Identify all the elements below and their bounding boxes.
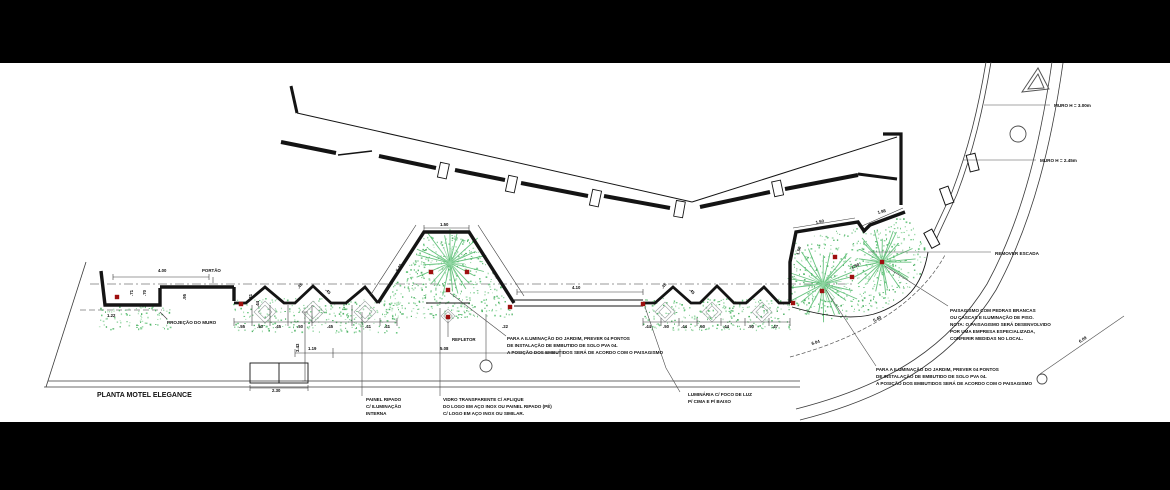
note-iluminacao-jardim-direita-line-1: PARA A ILUMINAÇÃO DO JARDIM, PREVER 04 P…: [876, 366, 999, 372]
dimension-text: .71: [129, 289, 134, 296]
dimension-text: .45: [327, 324, 334, 329]
refletor-marker: [446, 315, 450, 319]
dimension-text: .95: [182, 293, 187, 300]
dimension-text: .44: [723, 324, 730, 329]
dimension-text: .41: [248, 293, 253, 300]
note-painel-ripado-line-3: INTERNA: [366, 411, 387, 416]
dimension-text: 4.10: [572, 285, 581, 290]
dimension-text: 5.08: [440, 346, 449, 351]
note-iluminacao-jardim-centro-line-1: PARA A ILUMINAÇÃO DO JARDIM, PREVER 04 P…: [507, 335, 630, 341]
note-painel-ripado-line-2: C/ ILUMINAÇÃO: [366, 403, 402, 409]
note-iluminacao-jardim-centro-line-3: A POSIÇÃO DOS EMBUTIDOS SERÁ DE ACORDO C…: [507, 349, 663, 355]
dimension-text: 1.50: [440, 222, 449, 227]
note-vidro-logo-line-2: DO LOGO EM AÇO INOX OU PAINEL RIPADO (PÉ…: [443, 402, 552, 409]
site-plan-drawing: PLANTA MOTEL ELEGANCEMURO H = 3.00mMURO …: [0, 0, 1170, 490]
refletor-marker: [641, 302, 645, 306]
refletor-marker: [833, 255, 837, 259]
note-iluminacao-jardim-direita-line-2: DE INSTALAÇÃO DE EMBUTIDO DE SOLO PVA 04…: [876, 373, 987, 379]
dimension-text: 4.00: [158, 268, 167, 273]
dimension-text: .50: [297, 324, 304, 329]
note-vidro-logo-line-1: VIDRO TRANSPARENTE C/ APLIQUE: [443, 397, 524, 402]
note-paisagismo-line-2: OU CASCAS E ILUMINAÇÃO DE PISO.: [950, 314, 1034, 320]
dimension-text: .47: [772, 324, 779, 329]
dimension-text: .41: [384, 324, 391, 329]
dimension-text: .22: [502, 324, 509, 329]
label-muro-h245: MURO H = 2.45m: [1040, 158, 1077, 163]
refletor-marker: [820, 289, 824, 293]
label-muro-h300: MURO H = 3.00m: [1054, 103, 1091, 108]
dimension-text: 1.22: [107, 313, 116, 318]
label-portao: PORTÃO: [202, 268, 221, 273]
refletor-marker: [239, 302, 243, 306]
note-iluminacao-jardim-centro-line-2: DE INSTALAÇÃO DE EMBUTIDO DE SOLO PVA 04…: [507, 342, 618, 348]
dimension-text: .41: [365, 324, 372, 329]
note-luminaria-line-2: P/ CIMA E P/ BAIXO: [688, 399, 731, 404]
refletor-marker: [446, 288, 450, 292]
dimension-text: .50: [748, 324, 755, 329]
dimension-text: .55: [239, 324, 246, 329]
note-painel-ripado-line-1: PAINEL RIPADO: [366, 397, 402, 402]
refletor-marker: [115, 295, 119, 299]
note-paisagismo-line-3: NOTA: O PAISAGISMO SERÁ DESENVOLVIDO: [950, 321, 1051, 327]
refletor-marker: [850, 275, 854, 279]
note-paisagismo-line-1: PAISAGISMO COM PEDRAS BRANCAS: [950, 308, 1036, 313]
label-remover-escada: REMOVER ESCADA: [995, 251, 1040, 256]
note-paisagismo-line-5: CONFERIR MEDIDAS NO LOCAL.: [950, 336, 1023, 341]
label-projecao-muro: PROJEÇÃO DO MURO: [167, 319, 217, 325]
refletor-marker: [880, 260, 884, 264]
refletor-marker: [429, 270, 433, 274]
drawing-title: PLANTA MOTEL ELEGANCE: [97, 392, 192, 399]
dimension-text: 3.43: [295, 343, 300, 352]
dimension-text: .44: [681, 324, 688, 329]
refletor-marker: [508, 305, 512, 309]
note-paisagismo-line-4: POR UMA EMPRESA ESPECIALIZADA,: [950, 329, 1035, 334]
dimension-text: .44: [255, 300, 260, 307]
dimension-text: .50: [699, 324, 706, 329]
dimension-text: .44: [645, 324, 652, 329]
note-vidro-logo-line-3: C/ LOGO EM AÇO INOX OU SIMILAR.: [443, 411, 524, 416]
site-plan-page: PLANTA MOTEL ELEGANCEMURO H = 3.00mMURO …: [0, 0, 1170, 490]
note-iluminacao-jardim-direita-line-3: A POSIÇÃO DOS EMBUTIDOS SERÁ DE ACORDO C…: [876, 380, 1032, 386]
note-luminaria-line-1: LUMINÁRIA C/ FOCO DE LUZ: [688, 391, 752, 397]
dimension-text: .45: [275, 324, 282, 329]
dimension-text: .70: [142, 289, 147, 296]
dimension-text: .50: [257, 324, 264, 329]
label-refletor: REFLETOR: [452, 337, 476, 342]
dimension-text: 1.19: [308, 346, 317, 351]
dimension-text: 2.30: [272, 388, 281, 393]
dimension-text: .50: [663, 324, 670, 329]
refletor-marker: [791, 301, 795, 305]
refletor-marker: [465, 270, 469, 274]
